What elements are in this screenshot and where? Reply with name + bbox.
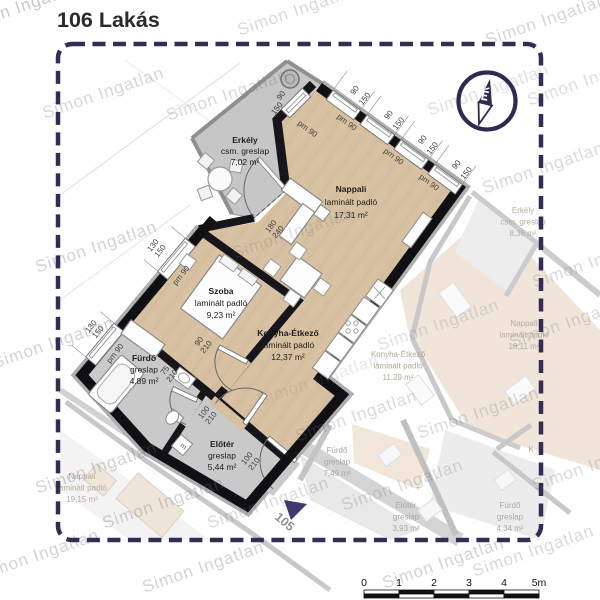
svg-text:7,02 m²: 7,02 m²: [231, 157, 260, 167]
svg-text:4,34 m²: 4,34 m²: [496, 524, 523, 533]
svg-text:9,23 m²: 9,23 m²: [207, 310, 236, 320]
svg-text:19,15 m²: 19,15 m²: [66, 495, 98, 504]
svg-text:4.89 m²: 4.89 m²: [130, 376, 159, 386]
svg-text:2: 2: [431, 577, 437, 589]
svg-text:K: K: [528, 445, 534, 454]
svg-text:3,93 m²: 3,93 m²: [392, 524, 419, 533]
svg-text:greslap: greslap: [324, 458, 351, 467]
svg-text:1: 1: [396, 577, 402, 589]
svg-text:Előtér: Előtér: [396, 501, 417, 510]
svg-text:greslap: greslap: [208, 451, 236, 461]
svg-text:Fürdő: Fürdő: [132, 353, 156, 363]
svg-text:csm. greslap: csm. greslap: [221, 146, 269, 156]
svg-text:106 Lakás: 106 Lakás: [57, 8, 160, 32]
svg-text:Előtér: Előtér: [210, 439, 235, 449]
svg-text:5m: 5m: [532, 577, 547, 589]
svg-text:12,37 m²: 12,37 m²: [271, 352, 305, 362]
svg-text:8,36 m²: 8,36 m²: [509, 229, 536, 238]
svg-text:Fürdő: Fürdő: [327, 446, 348, 455]
svg-text:laminált padló: laminált padló: [262, 340, 315, 350]
svg-text:Fürdő: Fürdő: [500, 501, 521, 510]
svg-text:5,44 m²: 5,44 m²: [208, 462, 237, 472]
svg-text:11.29 m²: 11.29 m²: [383, 373, 414, 382]
svg-text:greslap: greslap: [393, 513, 420, 522]
svg-text:Erkély: Erkély: [512, 206, 534, 215]
svg-text:7,49 m²: 7,49 m²: [323, 469, 350, 478]
svg-text:0: 0: [361, 577, 367, 589]
svg-text:Konyha-Étkező: Konyha-Étkező: [257, 328, 318, 338]
svg-text:Nappali: Nappali: [336, 184, 367, 194]
svg-text:4: 4: [501, 577, 507, 589]
svg-text:3: 3: [466, 577, 472, 589]
svg-text:Szoba: Szoba: [208, 286, 233, 296]
svg-text:greslap: greslap: [130, 365, 158, 375]
svg-text:Erkély: Erkély: [232, 135, 258, 145]
svg-text:greslap: greslap: [497, 513, 524, 522]
svg-text:laminált padló: laminált padló: [195, 298, 248, 308]
